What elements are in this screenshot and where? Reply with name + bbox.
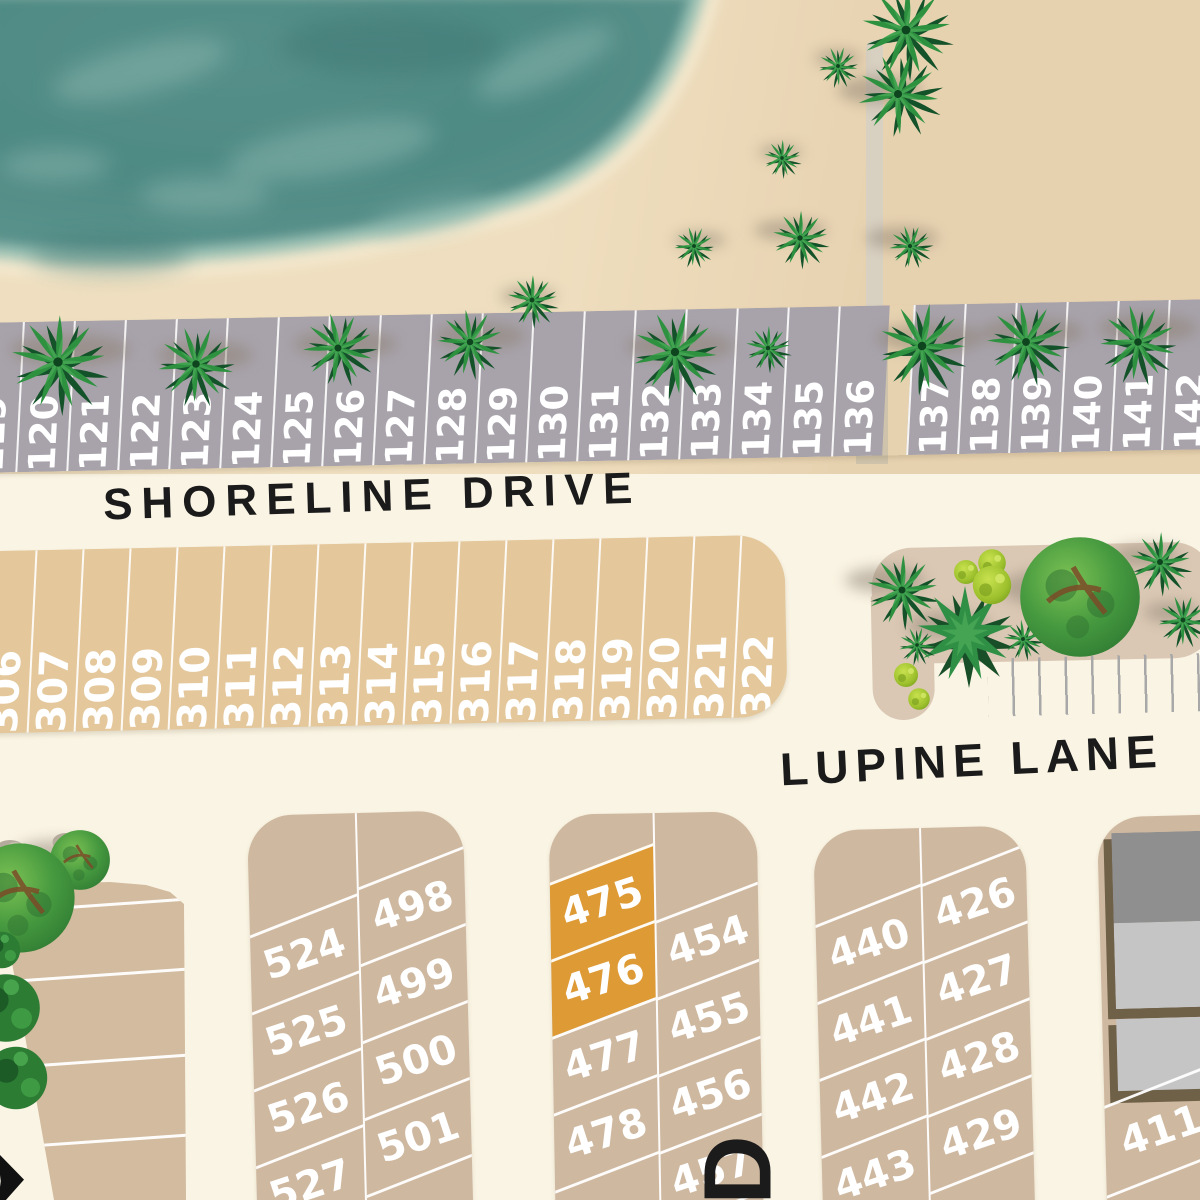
site-cell[interactable]: 134 [729,307,788,458]
site-number: 322 [736,611,781,717]
site-cell[interactable]: 129 [474,312,533,463]
site-number[interactable] [28,909,178,919]
site-number: 124 [227,381,268,468]
site-cell[interactable]: 142 [1161,299,1200,450]
site-cell[interactable]: 132 [627,309,686,460]
site-number: 139 [1016,366,1057,453]
site-number: 125 [278,380,319,467]
site-number: 308 [78,625,123,731]
site-number: 122 [125,383,166,470]
sites-block-323 [0,868,192,1200]
site-number: 121 [74,384,115,471]
site-cell[interactable]: 127 [372,314,431,465]
site-number: 140 [1067,365,1108,452]
site-number: 136 [839,369,880,456]
resort-site-map: 119 120 121 122 123 124 125 126 127 128 … [0,0,1200,1200]
site-number: 309 [125,624,170,730]
site-cell[interactable]: 139 [1008,302,1067,453]
site-number: 141 [1118,364,1159,451]
site-number: 306 [0,627,28,733]
parking-space-lines [987,653,1200,717]
sites-block-524-498: 524 525 526 527 498 499 500 501 [247,810,473,1200]
site-number: 313 [313,620,358,726]
beachfront-sites-row: 119 120 121 122 123 124 125 126 127 128 … [0,299,1200,473]
site-number: 320 [642,613,687,719]
site-cell[interactable]: 124 [219,317,278,468]
site-number: 317 [501,616,546,722]
sites-block-440-426: 440 441 442 443 426 427 428 429 [813,825,1035,1200]
site-number: 134 [737,371,778,458]
site-cell[interactable]: 126 [321,315,380,466]
site-number: 129 [482,376,523,463]
site-cell[interactable]: 135 [780,306,839,457]
site-cell[interactable]: 136 [831,305,890,456]
site-number: 127 [380,378,421,465]
site-divider [6,1134,186,1150]
site-number: 132 [635,373,676,460]
site-number: 307 [31,626,76,732]
site-number: 316 [454,617,499,723]
site-cell[interactable]: 130 [525,311,584,462]
site-number[interactable] [28,1155,178,1165]
sites-block-411: 411 [1097,815,1200,1200]
site-number: 314 [360,619,405,725]
site-divider [6,1054,186,1070]
site-divider [6,898,186,914]
site-number: 128 [431,377,472,464]
site-number: 315 [407,618,452,724]
site-cell[interactable]: 131 [576,310,635,461]
site-number: 319 [595,614,640,720]
site-number: 130 [533,375,574,462]
rock-icon [53,833,80,851]
site-divider [6,968,186,984]
site-cell[interactable]: 322 [731,535,787,718]
site-number: 311 [219,622,264,728]
site-number: 138 [965,367,1006,454]
site-cell[interactable]: 125 [270,316,329,467]
site-cell[interactable]: 120 [15,321,74,472]
site-number: 142 [1169,363,1200,450]
site-number: 310 [172,623,217,729]
site-number: 120 [23,385,64,472]
street-label-vertical-partial: D [684,1133,794,1200]
site-cell[interactable]: 123 [168,318,227,469]
street-label-lupine-lane: LUPINE LANE [779,724,1165,797]
site-number: 137 [914,368,955,455]
site-cell[interactable]: 133 [678,308,737,459]
site-number: 133 [686,372,727,459]
site-number: 126 [329,379,370,466]
site-cell[interactable]: 141 [1110,300,1169,451]
shoreline-sites-row: 306 307 308 309 310 311 312 313 314 315 … [0,535,788,734]
beach-path-pole [866,40,883,322]
landscaped-island-tail [871,595,936,720]
map-edge-arrow-icon [0,1148,24,1200]
site-number: 318 [548,615,593,721]
site-number: 119 [0,386,13,473]
site-number: 321 [689,612,734,718]
site-cell[interactable]: 122 [117,319,176,470]
site-number: 123 [176,382,217,469]
site-cell[interactable]: 138 [957,303,1016,454]
site-cell[interactable]: 121 [66,320,125,471]
site-number: 135 [788,370,829,457]
round-tree-icon [50,830,110,890]
site-number: 312 [266,621,311,727]
site-cell[interactable]: 140 [1059,301,1118,452]
site-number[interactable] [28,1077,178,1087]
site-cell[interactable]: 137 [906,304,965,455]
site-cell[interactable]: 128 [423,313,482,464]
rock-icon [0,840,25,860]
site-number: 131 [584,374,625,461]
site-number[interactable] [28,991,178,1001]
